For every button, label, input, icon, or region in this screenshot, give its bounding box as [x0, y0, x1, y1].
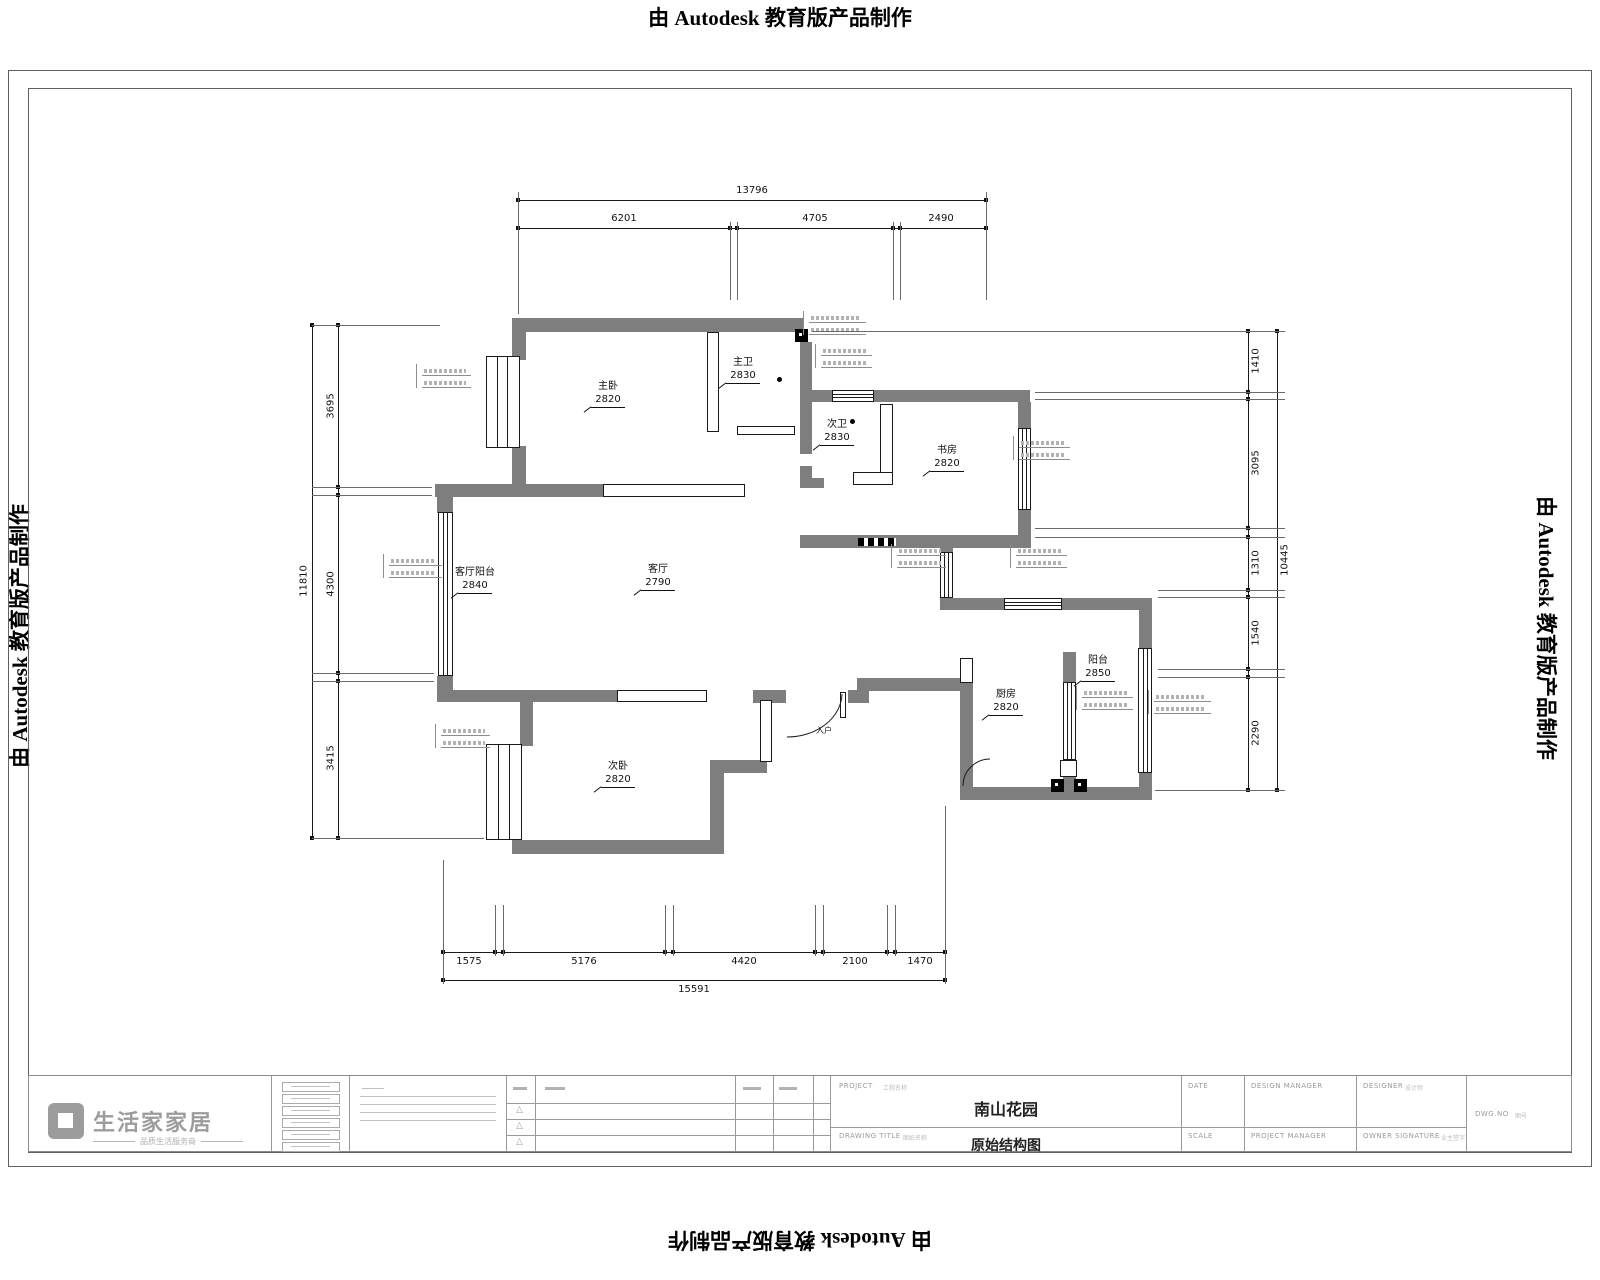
dim-line [338, 325, 339, 838]
bay-window [486, 744, 522, 840]
window [832, 390, 874, 402]
light-wall [617, 690, 707, 702]
dim-bottom-seg: 2100 [842, 956, 867, 967]
flue [1051, 779, 1064, 792]
wall [1139, 773, 1152, 789]
tiny-annotation [1148, 690, 1211, 714]
wall [445, 690, 617, 702]
dim-top-overall: 13796 [736, 185, 768, 196]
date-label: DATE [1188, 1082, 1208, 1090]
owner-signature-label-cn: 业主签字 [1441, 1133, 1465, 1142]
notes-cell [349, 1076, 506, 1151]
designer-label-cn: 设计师 [1405, 1083, 1423, 1092]
wall [435, 484, 605, 497]
drain-dot [777, 377, 782, 382]
manager-cell: DESIGN MANAGER PROJECT MANAGER [1244, 1076, 1356, 1151]
cabinet [737, 426, 795, 435]
banner-top: 由 Autodesk 教育版产品制作 [0, 2, 1560, 32]
dim-bottom-overall: 15591 [678, 984, 710, 995]
revision-triangle-icon: △ [516, 1138, 523, 1147]
bay-window [486, 356, 520, 448]
cad-sheet: 由 Autodesk 教育版产品制作 由 Autodesk 教育版产品制作 由 … [0, 0, 1600, 1280]
brand-name: 生活家家居 [93, 1105, 213, 1137]
tiny-annotation [815, 344, 872, 368]
dim-right-seg: 2290 [1251, 720, 1262, 745]
date-scale-cell: DATE SCALE [1181, 1076, 1244, 1151]
window [1063, 682, 1076, 760]
dim-right-seg: 1410 [1251, 348, 1262, 373]
dim-right-overall: 10445 [1280, 544, 1291, 576]
tiny-annotation [891, 544, 946, 568]
wall [1018, 402, 1031, 430]
wall [864, 678, 964, 691]
light-wall [853, 472, 893, 485]
dim-top-seg: 4705 [802, 213, 827, 224]
wall [437, 497, 453, 513]
banner-bottom: 由 Autodesk 教育版产品制作 [620, 1226, 980, 1256]
wall [512, 840, 724, 854]
dim-top-seg: 6201 [611, 213, 636, 224]
room-label: 入户 [806, 726, 842, 736]
dim-line [443, 980, 945, 981]
dim-left-seg: 3695 [326, 393, 337, 418]
scale-label: SCALE [1188, 1132, 1213, 1140]
dim-line [518, 200, 986, 201]
logo-cell: 生活家家居 品质生活服务商 [29, 1076, 271, 1151]
project-label: PROJECT [839, 1082, 873, 1090]
room-label: 客厅阳台2840 [436, 566, 514, 594]
dwg-no-label-cn: 图号 [1515, 1111, 1527, 1120]
fixture-box [1060, 760, 1077, 777]
revision-table: △ △ △ [506, 1076, 830, 1151]
wall [512, 318, 804, 332]
sheet-inner-frame [28, 88, 1572, 1153]
project-manager-label: PROJECT MANAGER [1251, 1132, 1326, 1140]
wall [800, 342, 812, 390]
tiny-annotation [1010, 544, 1067, 568]
owner-signature-label: OWNER SIGNATURE [1363, 1132, 1440, 1140]
dim-left-seg: 3415 [326, 745, 337, 770]
wall [710, 760, 724, 854]
tiny-annotation [416, 364, 471, 388]
dim-bottom-seg: 4420 [731, 956, 756, 967]
brand-logo-icon [48, 1103, 84, 1139]
dim-right-seg: 3095 [1251, 450, 1262, 475]
dim-bottom-seg: 1470 [907, 956, 932, 967]
wall [1018, 508, 1031, 548]
light-wall [880, 404, 893, 476]
tiny-annotation [1076, 686, 1133, 710]
dim-right-seg: 1310 [1251, 550, 1262, 575]
tiny-annotation [383, 554, 442, 578]
room-label: 阳台2850 [1070, 654, 1126, 682]
title-block: 生活家家居 品质生活服务商 △ △ △ [28, 1075, 1572, 1152]
project-name: 南山花园 [831, 1096, 1181, 1120]
room-label: 次卫2830 [812, 418, 862, 446]
dim-line [443, 952, 945, 953]
wall [800, 390, 832, 402]
wall [800, 478, 824, 488]
wall [874, 390, 1030, 402]
designer-cell: DESIGNER 设计师 OWNER SIGNATURE 业主签字 [1356, 1076, 1466, 1151]
design-manager-label: DESIGN MANAGER [1251, 1082, 1323, 1090]
tiny-annotation [435, 724, 490, 748]
brand-tagline: 品质生活服务商 [93, 1136, 243, 1147]
light-wall [603, 484, 745, 497]
dwg-no-label: DWG.NO [1475, 1110, 1509, 1118]
dim-left-seg: 4300 [326, 571, 337, 596]
tiny-annotation [1013, 436, 1070, 460]
dim-left-overall: 11810 [299, 565, 310, 597]
designer-label: DESIGNER [1363, 1082, 1403, 1090]
wall [520, 702, 533, 746]
dim-line [518, 228, 986, 229]
room-label: 次卧2820 [590, 760, 646, 788]
wall [800, 402, 812, 454]
window [1004, 598, 1062, 610]
project-cell: PROJECT 工程名称 南山花园 DRAWING TITLE 图纸名称 原始结… [830, 1076, 1181, 1151]
dim-right-seg: 1540 [1251, 620, 1262, 645]
flue [1074, 779, 1087, 792]
room-label: 主卧2820 [580, 380, 636, 408]
drawing-title: 原始结构图 [831, 1135, 1181, 1155]
dim-top-seg: 2490 [928, 213, 953, 224]
dim-bottom-seg: 5176 [571, 956, 596, 967]
corner-fixture-arc [962, 758, 992, 788]
dwg-no-cell: DWG.NO 图号 [1466, 1076, 1572, 1151]
wall [1139, 608, 1152, 648]
room-label: 主卫2830 [718, 356, 768, 384]
room-label: 书房2820 [922, 444, 972, 472]
revision-triangle-icon: △ [516, 1122, 523, 1131]
room-label: 客厅2790 [630, 563, 686, 591]
wall [512, 446, 526, 486]
project-label-cn: 工程名称 [883, 1083, 907, 1092]
room-label: 厨房2820 [978, 688, 1034, 716]
wall [940, 598, 1004, 610]
info-boxes-cell [271, 1076, 349, 1151]
dim-bottom-seg: 1575 [456, 956, 481, 967]
window [438, 512, 453, 676]
revision-triangle-icon: △ [516, 1106, 523, 1115]
light-wall [760, 700, 772, 762]
dim-line [312, 325, 313, 838]
light-wall [960, 658, 973, 683]
